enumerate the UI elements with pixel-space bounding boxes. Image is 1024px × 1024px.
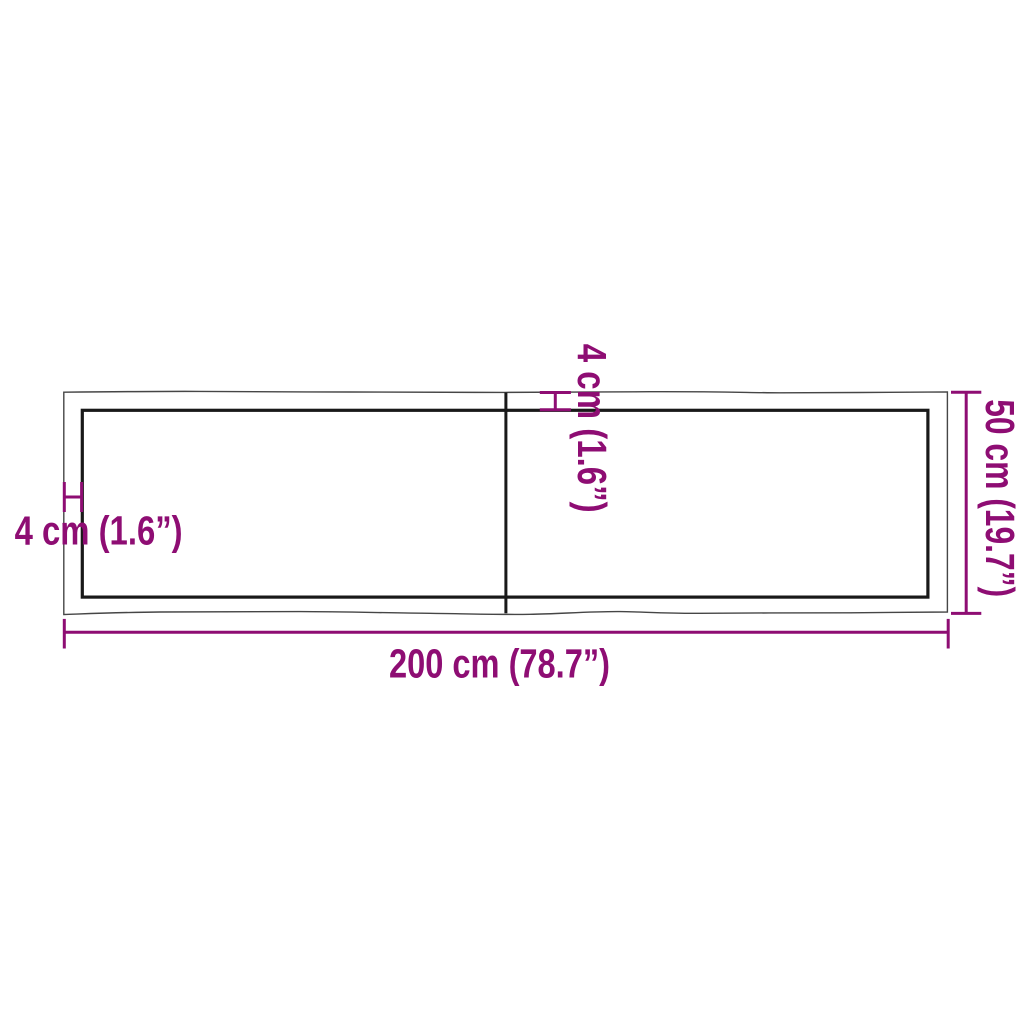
svg-text:200 cm (78.7”): 200 cm (78.7”) — [389, 640, 610, 686]
svg-text:4 cm (1.6”): 4 cm (1.6”) — [15, 508, 183, 554]
svg-text:4 cm (1.6”): 4 cm (1.6”) — [569, 344, 615, 513]
svg-text:50 cm (19.7”): 50 cm (19.7”) — [977, 399, 1023, 597]
